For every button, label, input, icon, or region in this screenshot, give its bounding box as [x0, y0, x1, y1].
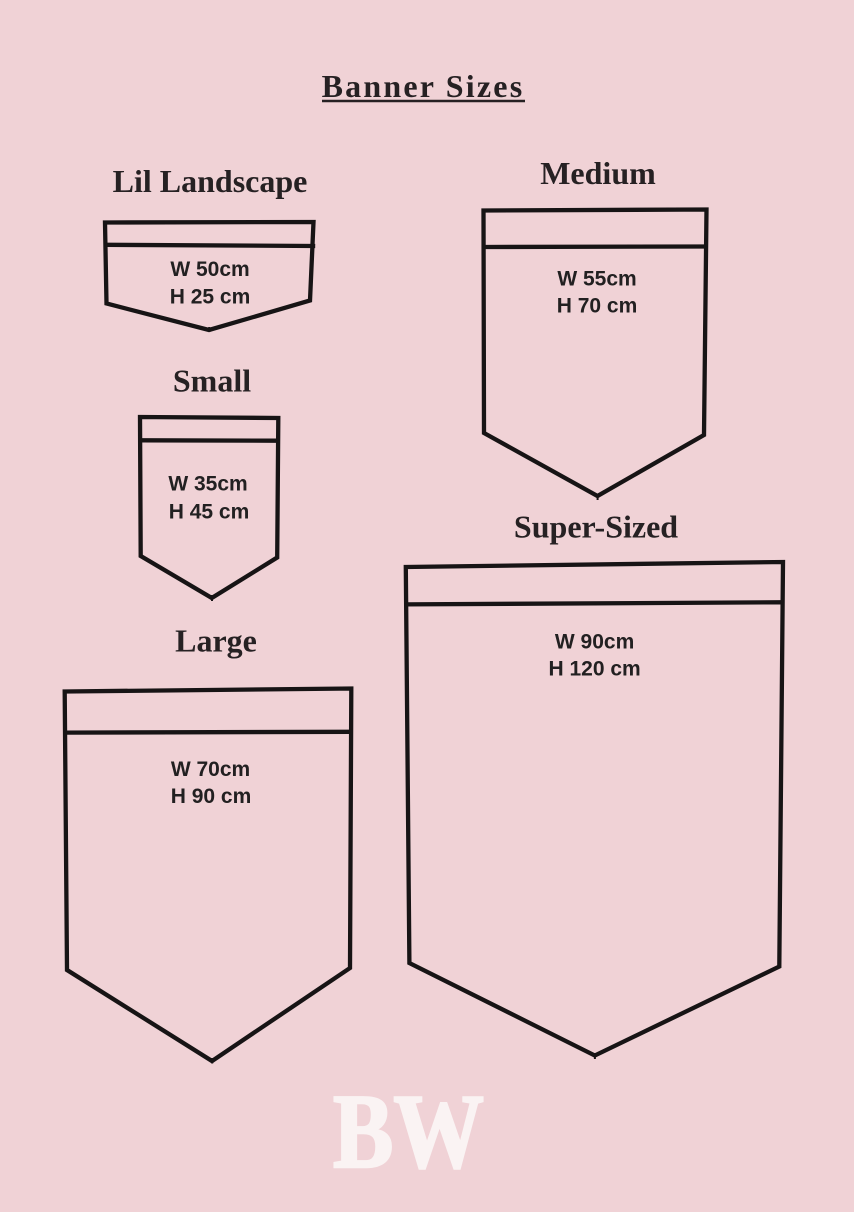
- svg-text:W 55cm: W 55cm: [557, 267, 636, 290]
- svg-text:Large: Large: [175, 623, 257, 659]
- svg-text:Banner Sizes: Banner Sizes: [322, 68, 525, 104]
- svg-text:W 90cm: W 90cm: [555, 631, 634, 654]
- svg-text:BW: BW: [333, 1073, 484, 1190]
- svg-text:W 50cm: W 50cm: [170, 258, 249, 281]
- svg-text:H 45 cm: H 45 cm: [169, 501, 250, 524]
- svg-text:W 35cm: W 35cm: [168, 472, 247, 495]
- svg-text:H 70 cm: H 70 cm: [557, 294, 638, 317]
- svg-text:Lil Landscape: Lil Landscape: [113, 163, 308, 199]
- svg-text:Small: Small: [173, 363, 251, 399]
- svg-text:Medium: Medium: [540, 155, 656, 191]
- svg-text:H 90 cm: H 90 cm: [171, 785, 252, 808]
- svg-text:Super-Sized: Super-Sized: [514, 509, 678, 545]
- svg-text:H 25 cm: H 25 cm: [170, 286, 251, 309]
- svg-text:H 120 cm: H 120 cm: [548, 658, 640, 681]
- svg-text:W 70cm: W 70cm: [171, 758, 250, 781]
